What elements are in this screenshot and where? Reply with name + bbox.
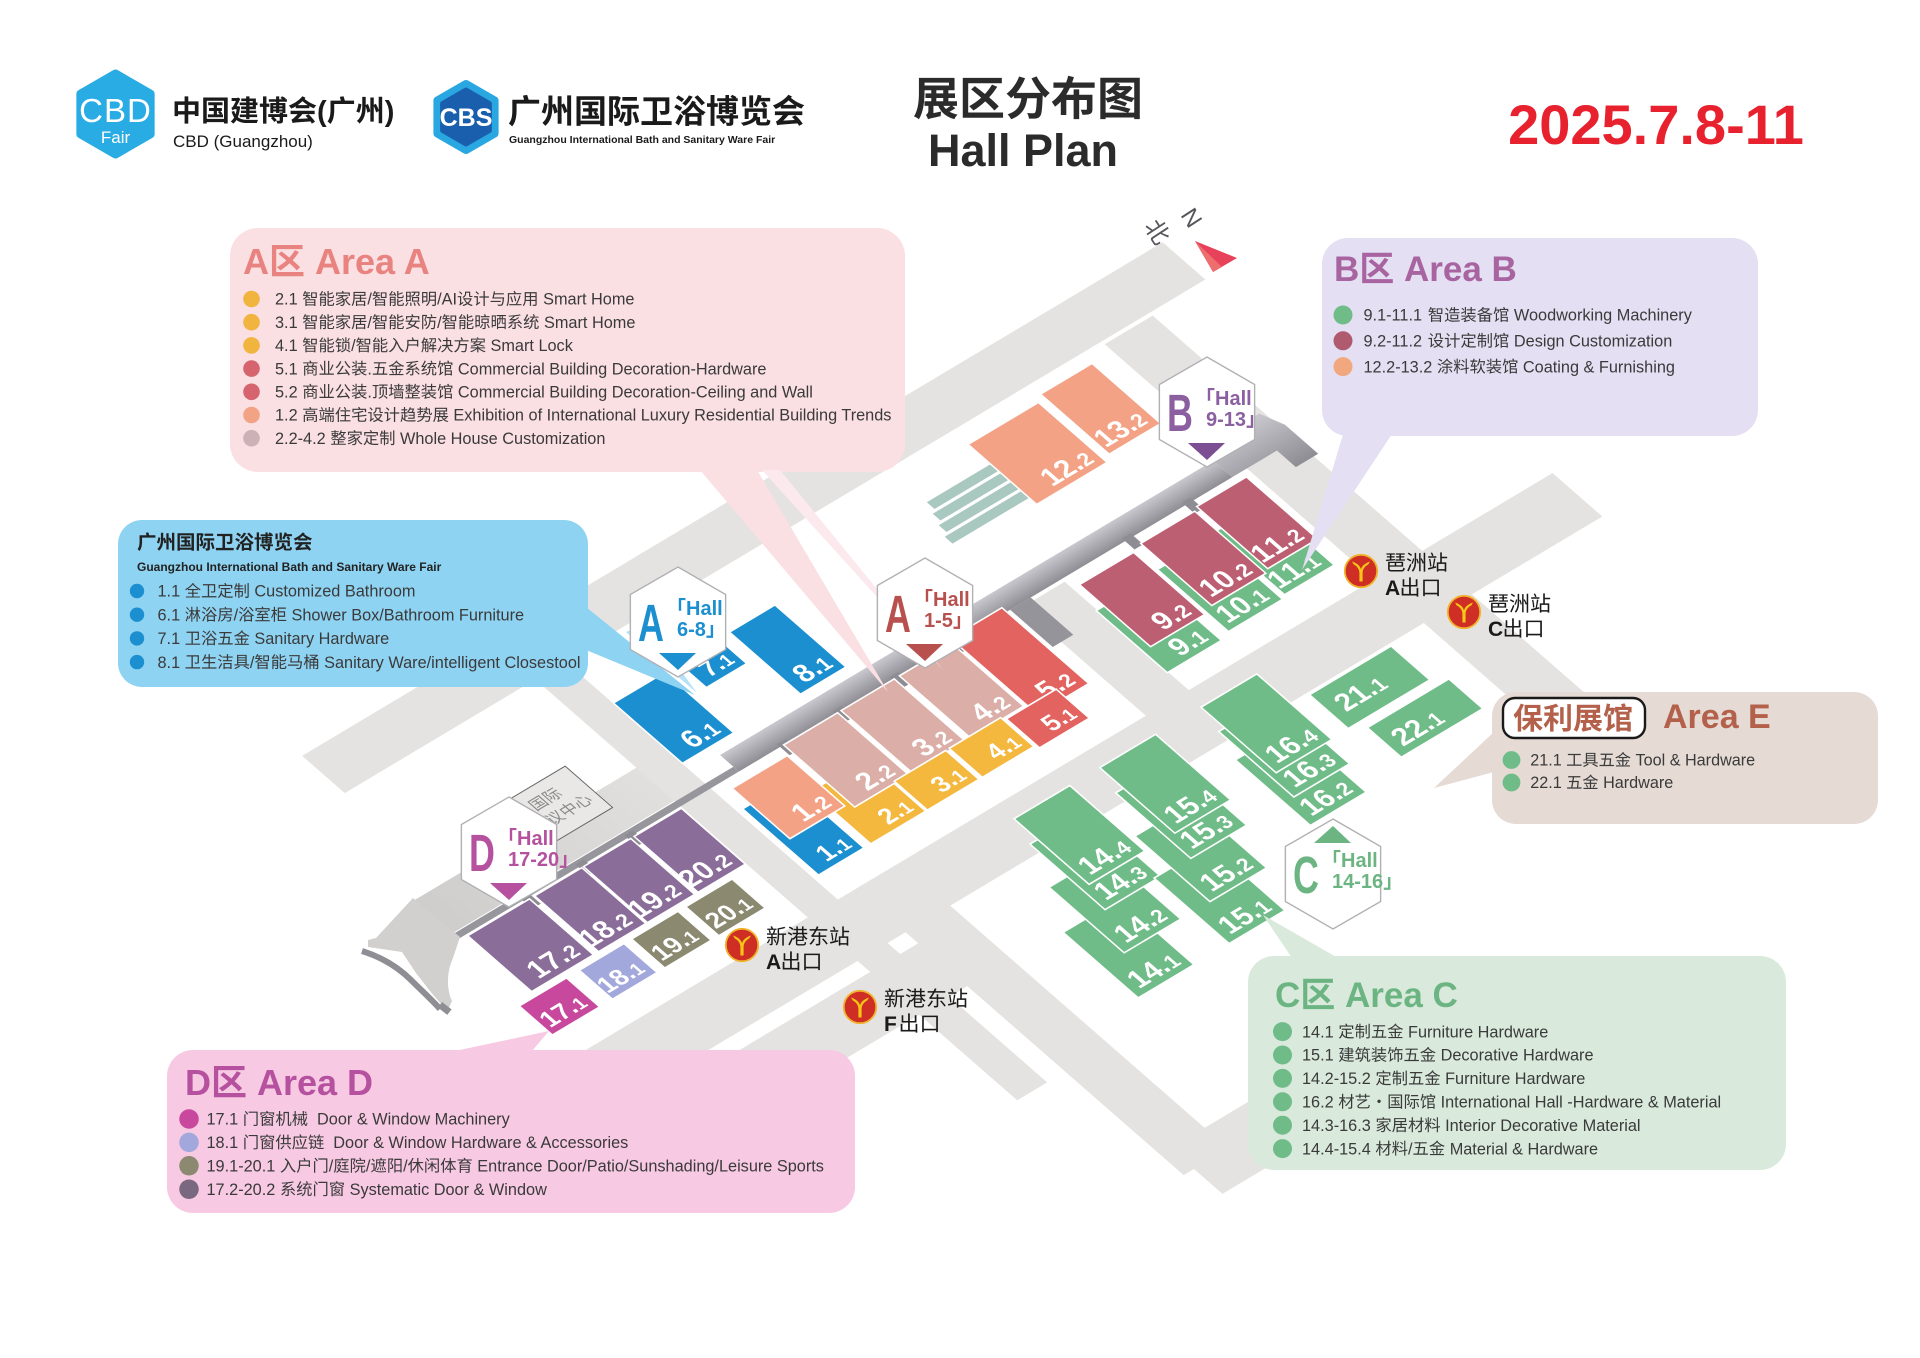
svg-text:Entrance Door/Patio/Sunshading: Entrance Door/Patio/Sunshading/Leisure S…	[477, 1158, 824, 1176]
svg-text:/: /	[403, 1158, 408, 1176]
svg-text:Sanitary Ware/intelligent Clos: Sanitary Ware/intelligent Closestool	[324, 654, 580, 672]
svg-text:Hardware: Hardware	[1603, 774, 1673, 792]
svg-text:Systematic Door & Window: Systematic Door & Window	[350, 1181, 547, 1199]
svg-text:.: .	[367, 360, 372, 378]
svg-text:Hall Plan: Hall Plan	[928, 125, 1118, 176]
svg-text:Area B: Area B	[1404, 250, 1517, 289]
svg-text:CBD: CBD	[79, 92, 152, 129]
svg-text:Interior Decorative Material: Interior Decorative Material	[1445, 1117, 1640, 1135]
svg-text:Tool & Hardware: Tool & Hardware	[1636, 752, 1756, 770]
svg-text:Commercial Building Decoration: Commercial Building Decoration-Ceiling a…	[458, 384, 813, 402]
svg-text:Hall: Hall	[686, 598, 723, 620]
svg-text:Hall: Hall	[933, 589, 970, 611]
svg-text:Coating & Furnishing: Coating & Furnishing	[1523, 358, 1675, 376]
svg-text:Exhibition of International Lu: Exhibition of International Luxury Resid…	[453, 407, 891, 425]
svg-text:5.1: 5.1	[275, 360, 298, 378]
svg-text:4.1: 4.1	[275, 337, 298, 355]
svg-text:/: /	[367, 314, 372, 332]
svg-text:/: /	[366, 1158, 371, 1176]
svg-text:Area C: Area C	[1345, 976, 1458, 1015]
svg-text:14.1: 14.1	[1302, 1023, 1334, 1041]
svg-text:17.1: 17.1	[207, 1111, 239, 1129]
svg-text:/: /	[250, 654, 255, 672]
svg-text:Smart Lock: Smart Lock	[491, 337, 574, 355]
svg-text:Smart Home: Smart Home	[543, 291, 634, 309]
svg-text:6.1: 6.1	[158, 606, 181, 624]
svg-text:21.1: 21.1	[1530, 752, 1562, 770]
svg-text:12.2-13.2: 12.2-13.2	[1364, 358, 1433, 376]
svg-text:6-8: 6-8	[677, 619, 706, 641]
svg-text:Door & Window Machinery: Door & Window Machinery	[317, 1111, 511, 1129]
svg-text:9.1-11.1: 9.1-11.1	[1364, 307, 1423, 325]
svg-text:/: /	[367, 291, 372, 309]
svg-text:CBD (Guangzhou): CBD (Guangzhou)	[173, 132, 313, 151]
svg-text:A: A	[243, 241, 269, 282]
svg-text:Guangzhou International Bath a: Guangzhou International Bath and Sanitar…	[509, 134, 775, 146]
svg-text:/: /	[234, 606, 239, 624]
svg-text:Furniture Hardware: Furniture Hardware	[1408, 1023, 1548, 1041]
svg-text:2.2-4.2: 2.2-4.2	[275, 430, 326, 448]
svg-text:8.1: 8.1	[158, 654, 181, 672]
svg-text:1-5: 1-5	[924, 610, 953, 632]
svg-text:Material & Hardware: Material & Hardware	[1450, 1140, 1598, 1158]
svg-text:19.1-20.1: 19.1-20.1	[207, 1158, 276, 1176]
svg-text:5.2: 5.2	[275, 384, 298, 402]
svg-text:Guangzhou International Bath a: Guangzhou International Bath and Sanitar…	[137, 560, 442, 574]
svg-text:): )	[385, 96, 395, 128]
svg-text:14.3-16.3: 14.3-16.3	[1302, 1117, 1371, 1135]
svg-text:Decorative Hardware: Decorative Hardware	[1441, 1047, 1594, 1065]
svg-text:Whole House Customization: Whole House Customization	[400, 430, 605, 448]
svg-text:Commercial Building Decoration: Commercial Building Decoration-Hardware	[458, 360, 767, 378]
svg-text:D: D	[185, 1062, 211, 1103]
svg-text:Fair: Fair	[101, 128, 131, 147]
svg-text:Sanitary Hardware: Sanitary Hardware	[254, 630, 389, 648]
svg-text:16.2: 16.2	[1302, 1094, 1334, 1112]
svg-text:Woodworking Machinery: Woodworking Machinery	[1514, 307, 1693, 325]
svg-text:/: /	[351, 337, 356, 355]
svg-text:/: /	[1408, 1140, 1413, 1158]
svg-text:22.1: 22.1	[1530, 774, 1562, 792]
svg-text:Area A: Area A	[315, 241, 430, 282]
svg-text:Smart Home: Smart Home	[544, 314, 635, 332]
svg-text:Design Customization: Design Customization	[1514, 333, 1672, 351]
svg-text:Area D: Area D	[257, 1062, 373, 1103]
svg-text:18.1: 18.1	[207, 1134, 239, 1152]
svg-text:A: A	[1385, 577, 1400, 600]
svg-text:Shower Box/Bathroom Furniture: Shower Box/Bathroom Furniture	[292, 606, 525, 624]
svg-text:C: C	[1488, 618, 1503, 641]
svg-text:17.2-20.2: 17.2-20.2	[207, 1181, 276, 1199]
svg-text:Hall: Hall	[1215, 388, 1252, 410]
svg-text:(: (	[317, 96, 327, 128]
svg-text:Door & Window Hardware & Acces: Door & Window Hardware & Accessories	[333, 1134, 628, 1152]
svg-text:14.2-15.2: 14.2-15.2	[1302, 1070, 1371, 1088]
svg-text:International Hall -Hardware &: International Hall -Hardware & Material	[1441, 1094, 1722, 1112]
svg-text:9-13: 9-13	[1206, 409, 1246, 431]
svg-text:C: C	[1275, 976, 1300, 1015]
svg-text:B: B	[1334, 250, 1359, 289]
svg-text:14.4-15.4: 14.4-15.4	[1302, 1140, 1371, 1158]
svg-text:2.1: 2.1	[275, 291, 298, 309]
svg-text:Furniture Hardware: Furniture Hardware	[1445, 1070, 1585, 1088]
svg-text:A: A	[766, 951, 781, 974]
svg-text:Customized Bathroom: Customized Bathroom	[254, 583, 415, 601]
svg-text:/: /	[329, 1158, 334, 1176]
svg-text:7.1: 7.1	[158, 630, 181, 648]
svg-text:3.1: 3.1	[275, 314, 298, 332]
svg-text:.: .	[367, 384, 372, 402]
svg-text:Area E: Area E	[1663, 698, 1771, 736]
svg-text:Hall: Hall	[517, 828, 554, 850]
svg-text:9.2-11.2: 9.2-11.2	[1364, 333, 1423, 351]
svg-text:15.1: 15.1	[1302, 1047, 1334, 1065]
svg-text:1.2: 1.2	[275, 407, 298, 425]
svg-text:Hall: Hall	[1341, 850, 1378, 872]
svg-text:/: /	[437, 314, 442, 332]
svg-text:2025.7.8-11: 2025.7.8-11	[1508, 93, 1804, 156]
svg-text:14-16: 14-16	[1332, 871, 1383, 893]
svg-text:F: F	[884, 1013, 897, 1036]
svg-text:/AI: /AI	[437, 291, 457, 309]
svg-text:1.1: 1.1	[158, 583, 181, 601]
svg-text:CBS: CBS	[440, 104, 493, 132]
svg-text:17-20: 17-20	[508, 849, 559, 871]
